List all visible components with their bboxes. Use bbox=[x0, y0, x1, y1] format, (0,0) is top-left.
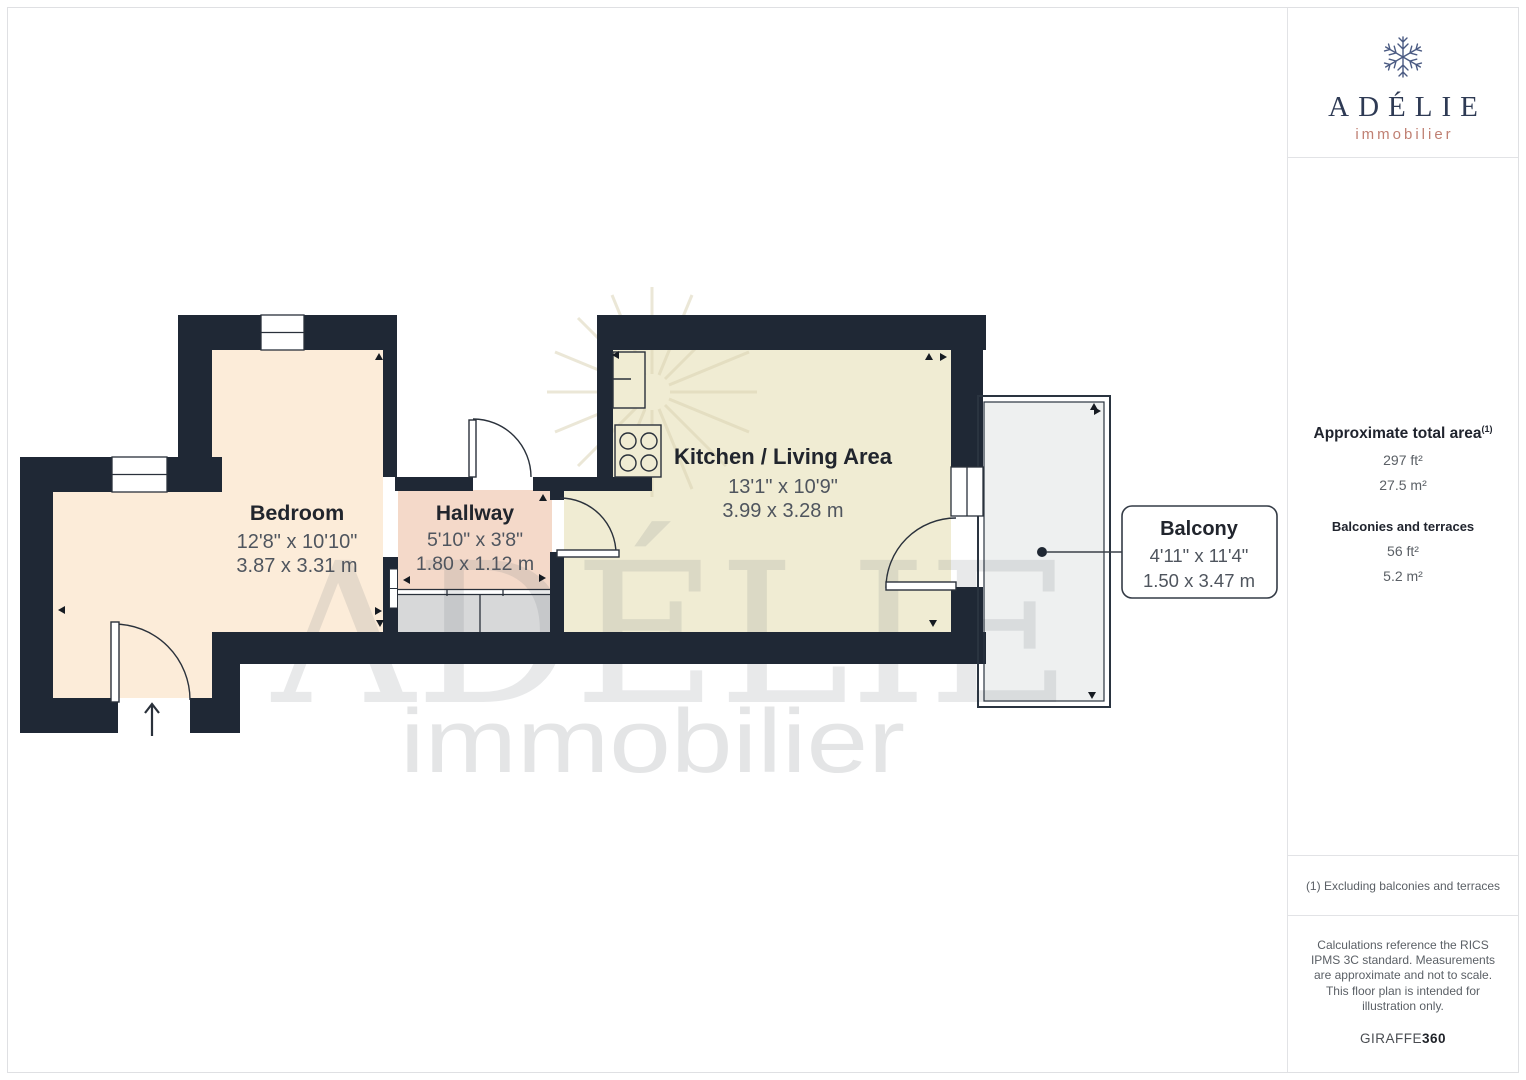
stove-hob bbox=[615, 425, 661, 477]
snowflake-icon bbox=[1380, 34, 1426, 80]
window bbox=[261, 315, 304, 350]
hallway-dim-metric: 1.80 x 1.12 m bbox=[416, 553, 534, 575]
pocket-door bbox=[390, 569, 398, 608]
footnote-ref: (1) bbox=[1481, 424, 1492, 434]
logo-subtitle: immobilier bbox=[1288, 126, 1518, 143]
footnote: (1) Excluding balconies and terraces bbox=[1288, 856, 1518, 916]
balconies-heading: Balconies and terraces bbox=[1288, 519, 1518, 534]
entrance-arrow bbox=[145, 704, 159, 736]
area-summary: Approximate total area(1) 297 ft² 27.5 m… bbox=[1288, 158, 1518, 856]
callout-dot bbox=[1037, 547, 1047, 557]
hallway-label: Hallway bbox=[436, 502, 515, 525]
balcony-dim-imperial: 4'11" x 11'4" bbox=[1150, 545, 1249, 566]
logo-wordmark: ADÉLIE bbox=[1288, 91, 1518, 124]
giraffe360-brand: GIRAFFE360 bbox=[1288, 1031, 1518, 1046]
kitchen-dim-metric: 3.99 x 3.28 m bbox=[722, 500, 843, 522]
total-area-metric: 27.5 m² bbox=[1288, 477, 1518, 493]
floor-plan: ADÉLIE immobilier bbox=[0, 0, 1286, 1080]
total-area-imperial: 297 ft² bbox=[1288, 452, 1518, 468]
balcony-label: Balcony bbox=[1160, 518, 1239, 540]
disclaimer-section: Calculations reference the RICS IPMS 3C … bbox=[1288, 916, 1518, 1046]
sidebar: ADÉLIE immobilier Approximate total area… bbox=[1287, 8, 1518, 1072]
balconies-imperial: 56 ft² bbox=[1288, 543, 1518, 559]
bedroom-dim-metric: 3.87 x 3.31 m bbox=[236, 555, 357, 577]
balconies-metric: 5.2 m² bbox=[1288, 568, 1518, 584]
window bbox=[112, 457, 167, 492]
bedroom-dim-imperial: 12'8" x 10'10" bbox=[237, 531, 358, 553]
kitchen-label: Kitchen / Living Area bbox=[674, 444, 893, 469]
window bbox=[951, 467, 983, 516]
brand-logo: ADÉLIE immobilier bbox=[1288, 8, 1518, 158]
kitchen-dim-imperial: 13'1" x 10'9" bbox=[728, 476, 838, 498]
balcony-dim-metric: 1.50 x 3.47 m bbox=[1143, 570, 1255, 591]
total-area-heading: Approximate total area(1) bbox=[1288, 424, 1518, 443]
watermark-subtitle: immobilier bbox=[400, 692, 905, 792]
kitchen-sink bbox=[613, 352, 645, 408]
disclaimer-text: Calculations reference the RICS IPMS 3C … bbox=[1309, 938, 1497, 1014]
hallway-top-door bbox=[469, 419, 531, 477]
bedroom-label: Bedroom bbox=[250, 501, 344, 525]
hallway-dim-imperial: 5'10" x 3'8" bbox=[427, 529, 523, 551]
floorplan-page: ADÉLIE immobilier bbox=[0, 0, 1526, 1080]
